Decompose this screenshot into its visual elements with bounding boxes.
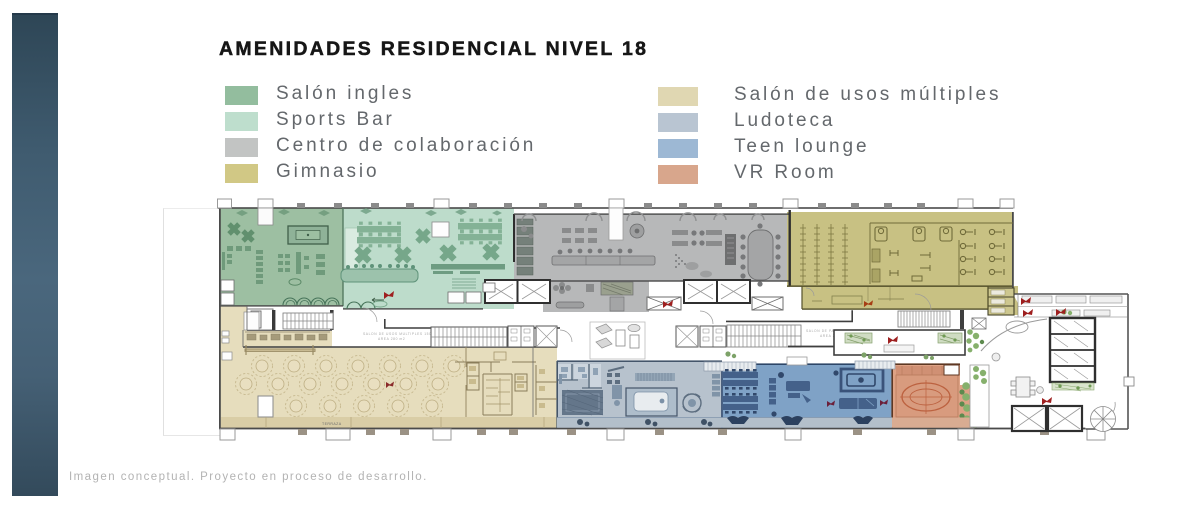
svg-text:TERRAZA: TERRAZA: [322, 422, 342, 426]
svg-text:AREA 280 m2: AREA 280 m2: [378, 337, 405, 341]
